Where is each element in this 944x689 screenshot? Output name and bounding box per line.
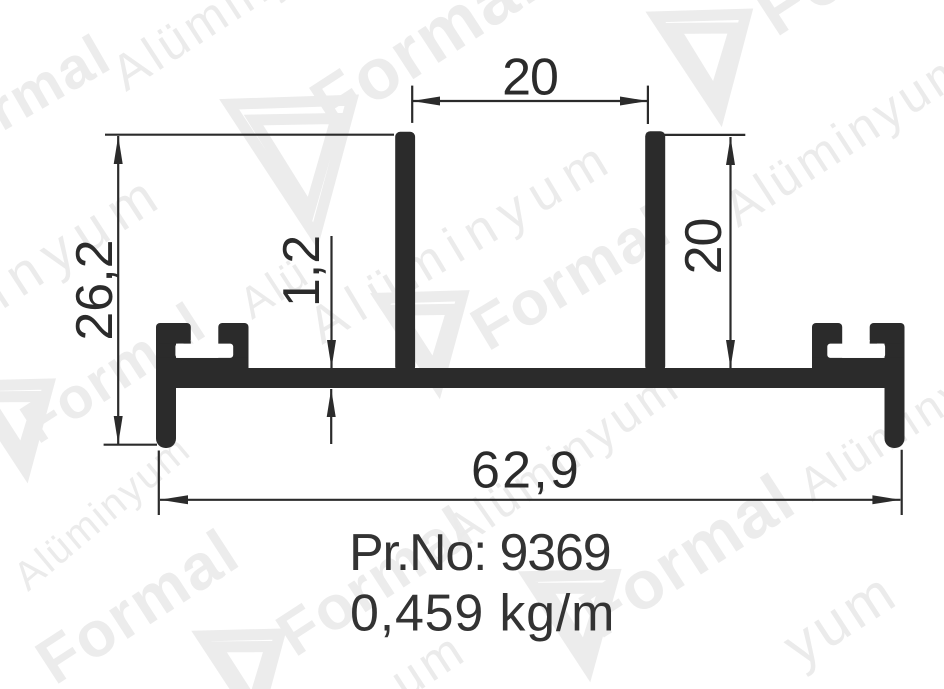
svg-text:0,459 kg/m: 0,459 kg/m — [350, 585, 615, 643]
svg-text:1,2: 1,2 — [273, 235, 331, 307]
svg-text:Formal: Formal — [741, 0, 944, 51]
svg-text:rmal: rmal — [0, 22, 122, 144]
svg-text:26,2: 26,2 — [66, 239, 124, 340]
svg-text:62,9: 62,9 — [471, 442, 581, 500]
svg-text:yum: yum — [772, 558, 909, 679]
svg-text:20: 20 — [675, 219, 733, 275]
svg-text:20: 20 — [502, 49, 558, 107]
svg-text:Pr.No: 9369: Pr.No: 9369 — [349, 524, 610, 582]
svg-text:Alüminyum: Alüminyum — [713, 36, 944, 237]
